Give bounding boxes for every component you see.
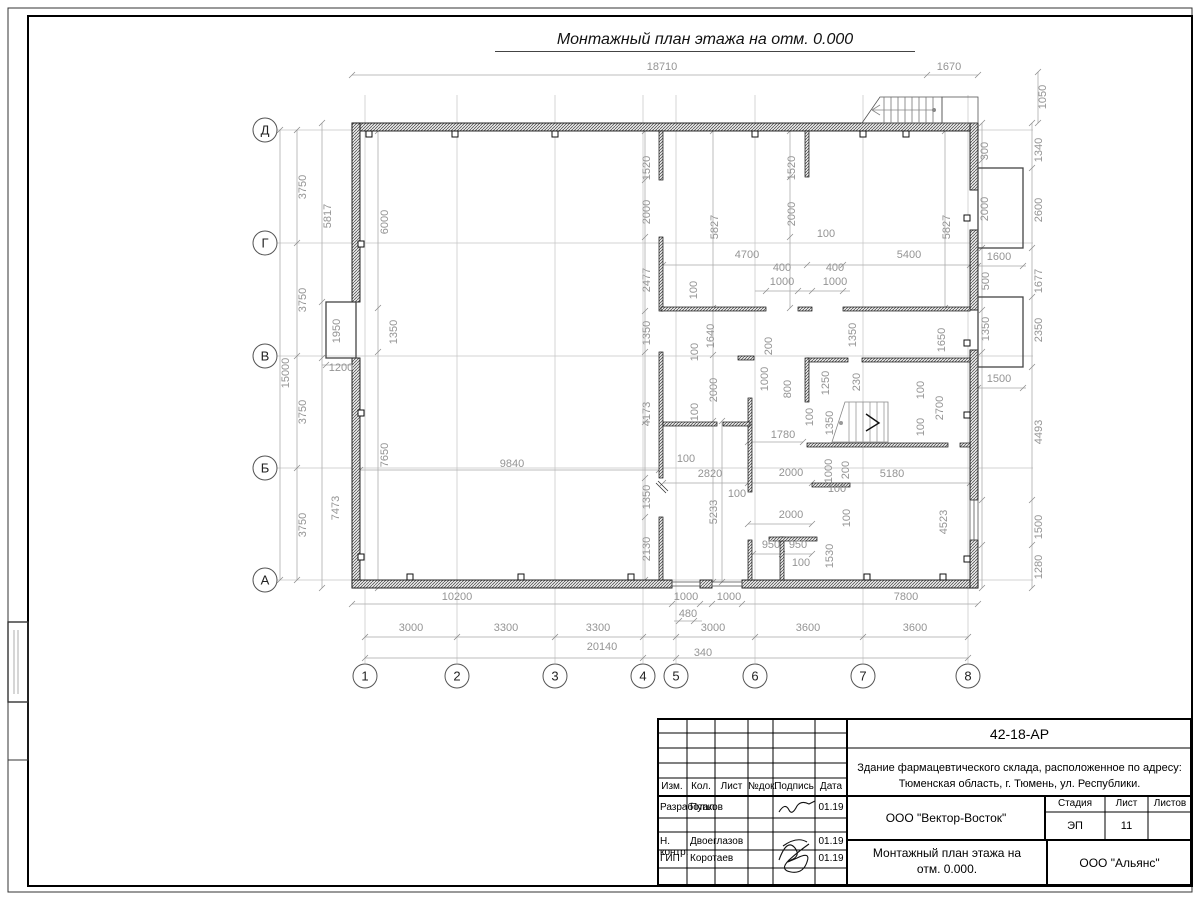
dim-label: 5233 xyxy=(708,500,720,524)
dim-label: 1000 xyxy=(717,591,741,603)
signature-developer xyxy=(779,801,815,812)
dim-label: 100 xyxy=(689,403,701,421)
dim-label: 950 xyxy=(762,539,780,551)
dim-label: 100 xyxy=(915,418,927,436)
tb-company: ООО "Вектор-Восток" xyxy=(847,811,1045,825)
dim-label: 2130 xyxy=(641,537,653,561)
dim-label: 5827 xyxy=(941,215,953,239)
dim-label: 20140 xyxy=(587,641,618,653)
dim-label: 200 xyxy=(763,337,775,355)
dim-label: 1677 xyxy=(1033,269,1045,293)
dim-label: 1530 xyxy=(824,544,836,568)
axis-bubble-label: 2 xyxy=(453,669,460,684)
dim-label: 1000 xyxy=(823,459,835,483)
tb-col-izm: Изм. xyxy=(657,781,687,792)
dim-label: 1350 xyxy=(980,317,992,341)
dim-label: 1520 xyxy=(786,156,798,180)
dim-label: 1000 xyxy=(770,276,794,288)
tb-drawing-name-1: Монтажный план этажа на xyxy=(847,846,1047,860)
tb-name-gip: Коротаев xyxy=(690,853,748,864)
exterior-stair xyxy=(862,97,978,123)
window-right-wall xyxy=(970,500,978,540)
interior-stair xyxy=(832,402,888,442)
dim-label: 100 xyxy=(792,557,810,569)
dim-label: 2000 xyxy=(979,197,991,221)
dim-label: 3300 xyxy=(494,622,518,634)
axis-bubble-label: Б xyxy=(261,461,270,476)
tb-sheet-value: 11 xyxy=(1105,820,1148,832)
dim-label: 15000 xyxy=(280,358,292,389)
tb-sheet-label: Лист xyxy=(1105,798,1148,809)
dim-label: 2000 xyxy=(641,200,653,224)
dim-label: 950 xyxy=(789,539,807,551)
tb-drawing-name-2: отм. 0.000. xyxy=(847,862,1047,876)
grid-lines xyxy=(277,95,1033,663)
tb-role-gip: ГИП xyxy=(660,853,690,864)
dim-label: 1350 xyxy=(641,485,653,509)
axis-bubble-label: Г xyxy=(261,236,268,251)
axis-bubble-label: Д xyxy=(261,123,270,138)
tb-date-ncontr: 01.19 xyxy=(815,836,847,847)
tb-col-data: Дата xyxy=(815,781,847,792)
signature-gip xyxy=(779,840,809,873)
dim-label: 4493 xyxy=(1033,420,1045,444)
axis-bubble-label: А xyxy=(261,573,270,588)
tb-stage-label: Стадия xyxy=(1045,798,1105,809)
axis-bubble-label: 4 xyxy=(639,669,646,684)
dim-label: 4173 xyxy=(641,402,653,426)
dim-label: 7800 xyxy=(894,591,918,603)
tb-role-developer: Разработал xyxy=(660,802,690,813)
dim-label: 1600 xyxy=(987,251,1011,263)
axis-bubble-label: 1 xyxy=(361,669,368,684)
dim-label: 480 xyxy=(679,608,697,620)
tb-sheets-label: Листов xyxy=(1148,798,1192,809)
porches xyxy=(326,168,1023,367)
exterior-walls xyxy=(352,123,978,588)
drawing-sheet: ДГВБА12345678 18710167010503750375037503… xyxy=(0,0,1200,900)
dim-label: 9840 xyxy=(500,458,524,470)
dim-label: 1500 xyxy=(987,373,1011,385)
dim-label: 4523 xyxy=(938,510,950,534)
wall-marks xyxy=(358,131,970,580)
tb-name-ncontr: Двоеглазов xyxy=(690,836,748,847)
tb-date-gip: 01.19 xyxy=(815,853,847,864)
tb-col-list: Лист xyxy=(715,781,748,792)
dim-label: 1000 xyxy=(759,367,771,391)
dim-label: 3600 xyxy=(796,622,820,634)
dim-label: 300 xyxy=(979,142,991,160)
dim-label: 3750 xyxy=(297,513,309,537)
dim-label: 100 xyxy=(728,488,746,500)
dim-label: 1640 xyxy=(705,324,717,348)
dim-label: 3750 xyxy=(297,175,309,199)
dim-label: 2600 xyxy=(1033,198,1045,222)
dim-label: 1200 xyxy=(329,362,353,374)
dim-label: 1950 xyxy=(331,319,343,343)
dim-label: 7473 xyxy=(330,496,342,520)
dim-label: 2000 xyxy=(779,509,803,521)
tb-col-ndok: №док. xyxy=(748,781,773,792)
title-block: Изм. Кол. Лист №док. Подпись Дата 42-18-… xyxy=(657,718,1192,886)
tb-org: ООО "Альянс" xyxy=(1047,856,1192,870)
dim-label: 1650 xyxy=(936,328,948,352)
dim-label: 6000 xyxy=(379,210,391,234)
dim-label: 2820 xyxy=(698,468,722,480)
dim-label: 3000 xyxy=(399,622,423,634)
dim-label: 340 xyxy=(694,647,712,659)
dim-label: 1520 xyxy=(641,156,653,180)
tb-date-developer: 01.19 xyxy=(815,802,847,813)
dim-label: 100 xyxy=(804,408,816,426)
dim-label: 1500 xyxy=(1033,515,1045,539)
dim-label: 5827 xyxy=(709,215,721,239)
dim-label: 2000 xyxy=(708,378,720,402)
axis-bubble-label: 5 xyxy=(672,669,679,684)
dim-label: 1000 xyxy=(823,276,847,288)
dim-label: 1780 xyxy=(771,429,795,441)
dim-label: 5817 xyxy=(322,204,334,228)
axis-bubble-label: 8 xyxy=(964,669,971,684)
dim-label: 3750 xyxy=(297,400,309,424)
dim-label: 2000 xyxy=(779,467,803,479)
tb-col-kol: Кол. xyxy=(687,781,715,792)
tb-name-developer: Пупков xyxy=(690,802,746,813)
axis-bubble-label: 7 xyxy=(859,669,866,684)
dim-label: 1280 xyxy=(1033,555,1045,579)
axis-bubble-label: В xyxy=(261,349,270,364)
dim-label: 800 xyxy=(782,380,794,398)
axis-bubble-label: 6 xyxy=(751,669,758,684)
dim-label: 5400 xyxy=(897,249,921,261)
dim-label: 100 xyxy=(677,453,695,465)
tb-stage-value: ЭП xyxy=(1045,820,1105,832)
dim-label: 230 xyxy=(851,373,863,391)
dim-label: 3600 xyxy=(903,622,927,634)
dim-label: 7650 xyxy=(379,443,391,467)
tb-col-podpis: Подпись xyxy=(773,781,815,792)
dim-label: 100 xyxy=(841,509,853,527)
axis-bubble-label: 3 xyxy=(551,669,558,684)
sheet-title: Монтажный план этажа на отм. 0.000 xyxy=(495,31,915,52)
dim-label: 10200 xyxy=(442,591,473,603)
tb-doc-number: 42-18-АР xyxy=(847,726,1192,742)
dim-label: 100 xyxy=(828,483,846,495)
dim-label: 400 xyxy=(826,262,844,274)
dim-label: 100 xyxy=(688,281,700,299)
dim-label: 1050 xyxy=(1037,85,1049,109)
tb-project-line1: Здание фармацевтического склада, располо… xyxy=(849,762,1190,774)
dim-label: 1670 xyxy=(937,61,961,73)
dim-label: 500 xyxy=(980,272,992,290)
dim-label: 1350 xyxy=(388,320,400,344)
dim-label: 3750 xyxy=(297,288,309,312)
dim-label: 2700 xyxy=(934,396,946,420)
tb-project-line2: Тюменская область, г. Тюмень, ул. Респуб… xyxy=(849,778,1190,790)
dim-label: 1350 xyxy=(824,411,836,435)
dim-label: 1250 xyxy=(820,371,832,395)
signatures xyxy=(779,801,815,872)
dim-label: 3000 xyxy=(701,622,725,634)
dim-label: 1340 xyxy=(1033,138,1045,162)
dim-label: 1350 xyxy=(847,323,859,347)
left-margin-table xyxy=(8,622,28,760)
dim-label: 100 xyxy=(817,228,835,240)
dim-label: 400 xyxy=(773,262,791,274)
interior-walls xyxy=(659,131,970,580)
dim-label: 2350 xyxy=(1033,318,1045,342)
dim-label: 100 xyxy=(689,343,701,361)
dim-label: 2477 xyxy=(641,268,653,292)
dim-label: 18710 xyxy=(647,61,678,73)
dim-label: 200 xyxy=(840,461,852,479)
axis-bubbles: ДГВБА12345678 xyxy=(253,118,980,688)
dim-label: 4700 xyxy=(735,249,759,261)
dim-label: 3300 xyxy=(586,622,610,634)
dim-label: 2000 xyxy=(786,202,798,226)
dim-label: 1000 xyxy=(674,591,698,603)
dim-label: 100 xyxy=(915,381,927,399)
dim-label: 5180 xyxy=(880,468,904,480)
dim-label: 1350 xyxy=(641,321,653,345)
